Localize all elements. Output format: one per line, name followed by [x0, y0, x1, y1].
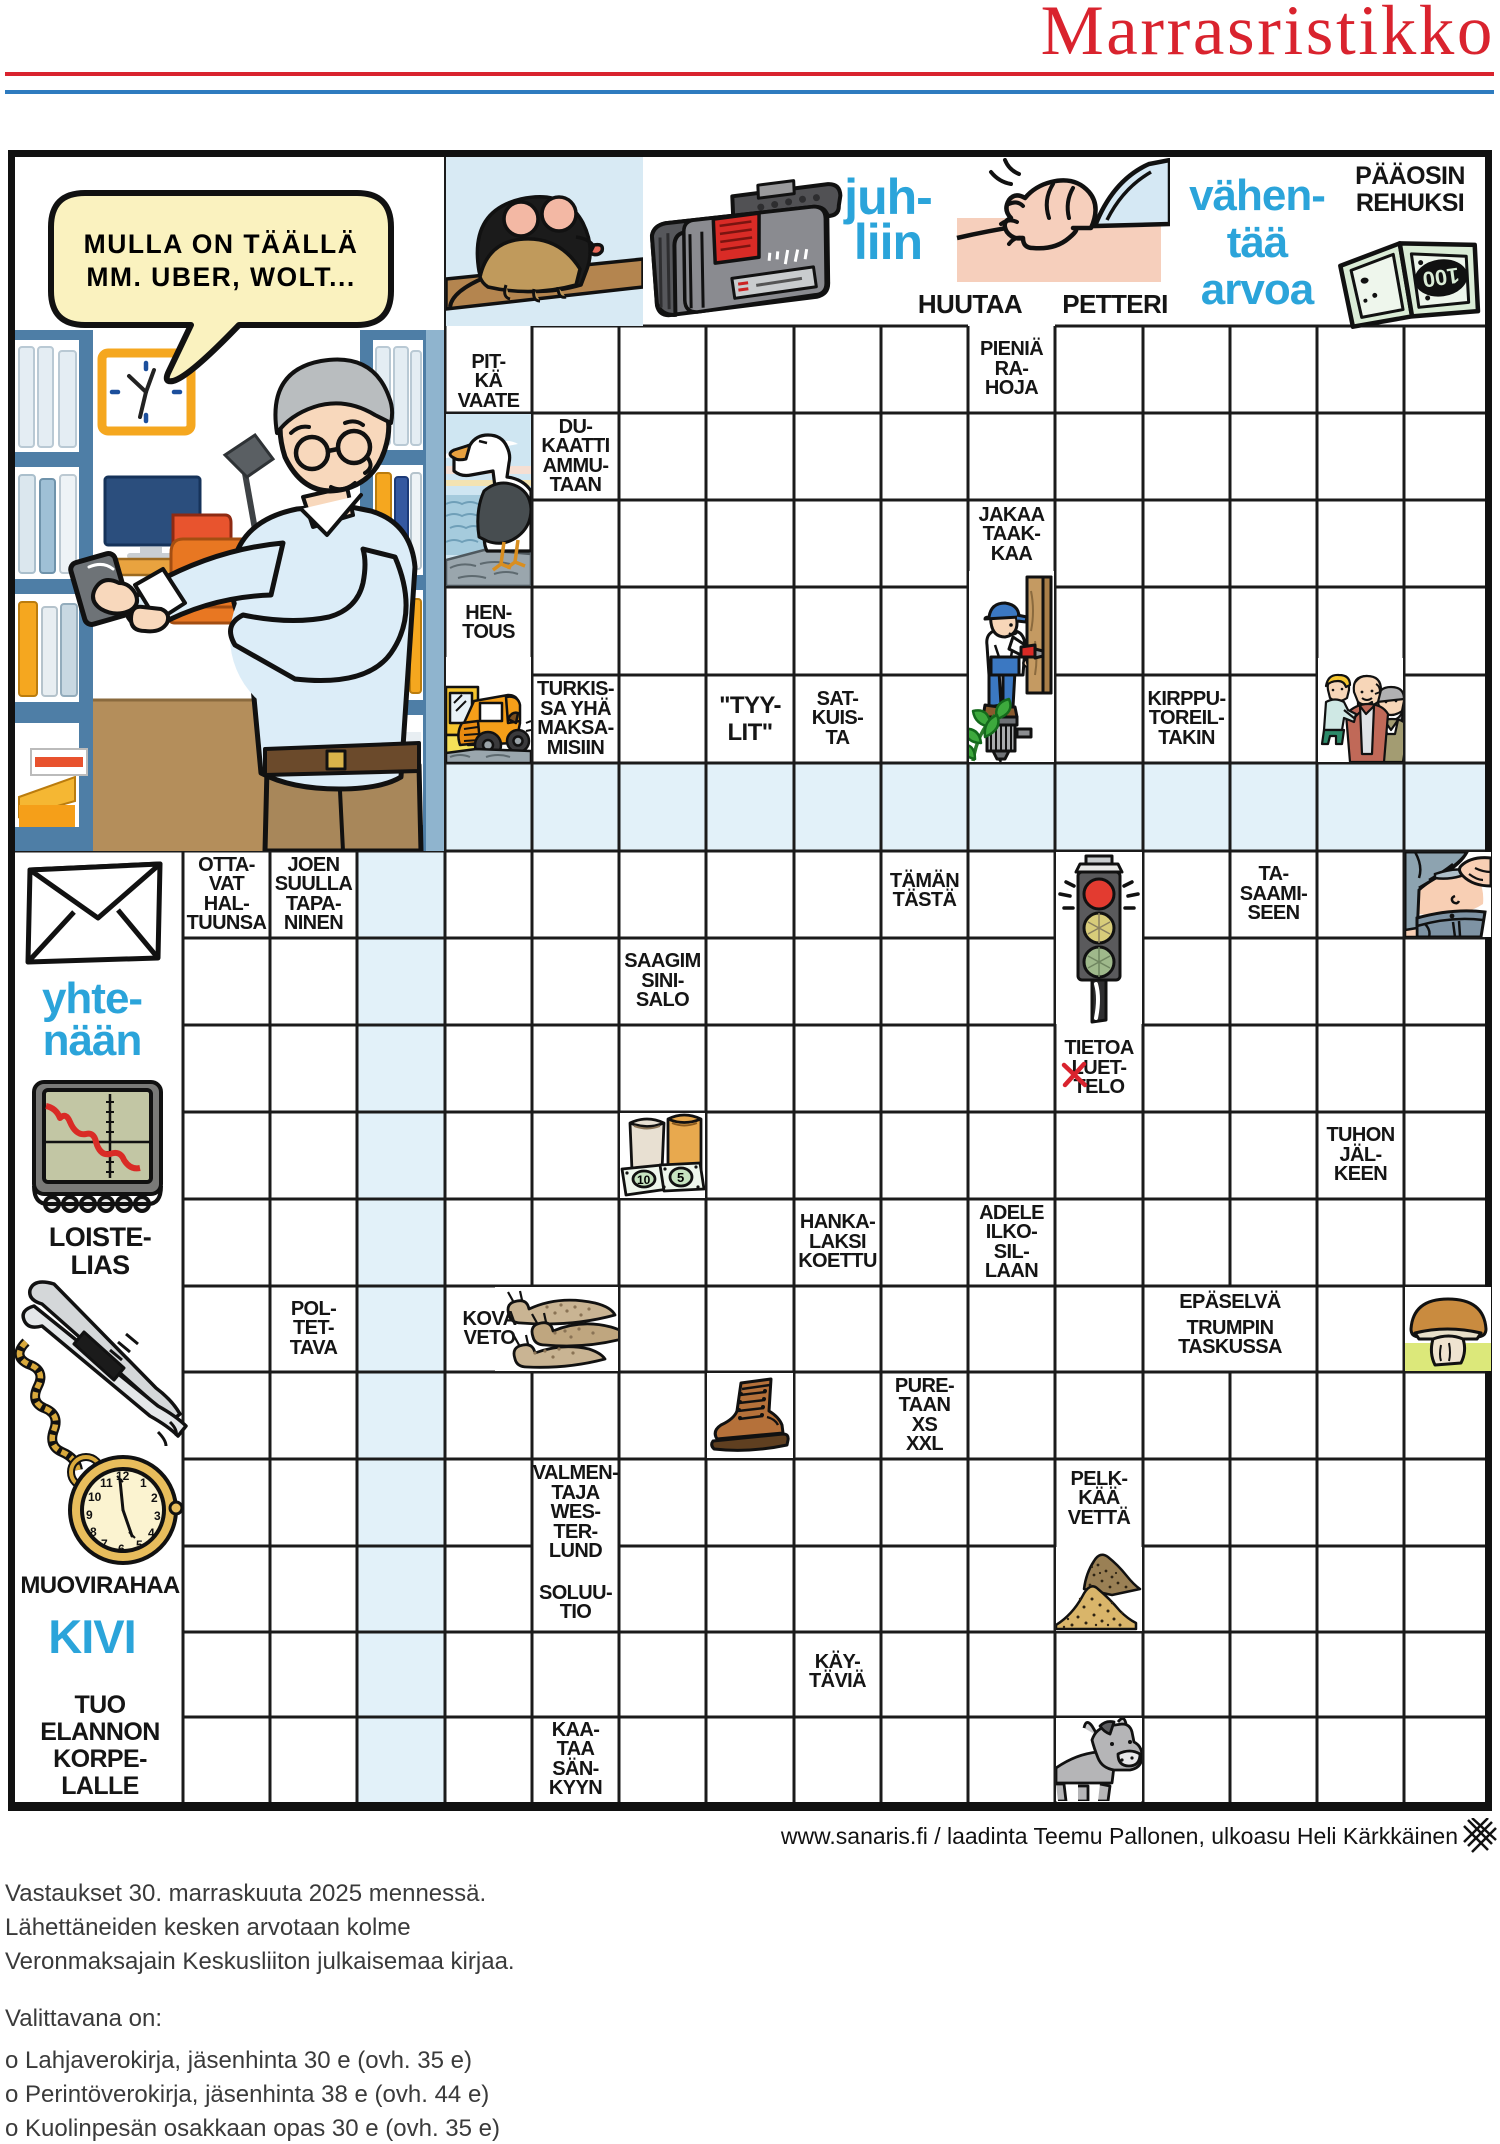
svg-text:11: 11 — [100, 1476, 113, 1490]
svg-text:9: 9 — [86, 1508, 93, 1522]
svg-text:6: 6 — [118, 1542, 125, 1556]
svg-text:5: 5 — [677, 1170, 684, 1185]
svg-text:MM. UBER, WOLT...: MM. UBER, WOLT... — [86, 262, 355, 292]
svg-text:2: 2 — [151, 1491, 158, 1505]
svg-text:1: 1 — [140, 1476, 147, 1490]
svg-text:7: 7 — [101, 1537, 108, 1551]
svg-text:8: 8 — [90, 1525, 97, 1539]
svg-text:MULLA ON TÄÄLLÄ: MULLA ON TÄÄLLÄ — [84, 229, 359, 259]
svg-text:10: 10 — [88, 1490, 102, 1504]
svg-text:3: 3 — [154, 1509, 161, 1523]
svg-text:10: 10 — [637, 1173, 651, 1187]
svg-text:100: 100 — [1421, 263, 1461, 293]
svg-text:5: 5 — [136, 1538, 143, 1552]
svg-text:4: 4 — [148, 1526, 155, 1540]
